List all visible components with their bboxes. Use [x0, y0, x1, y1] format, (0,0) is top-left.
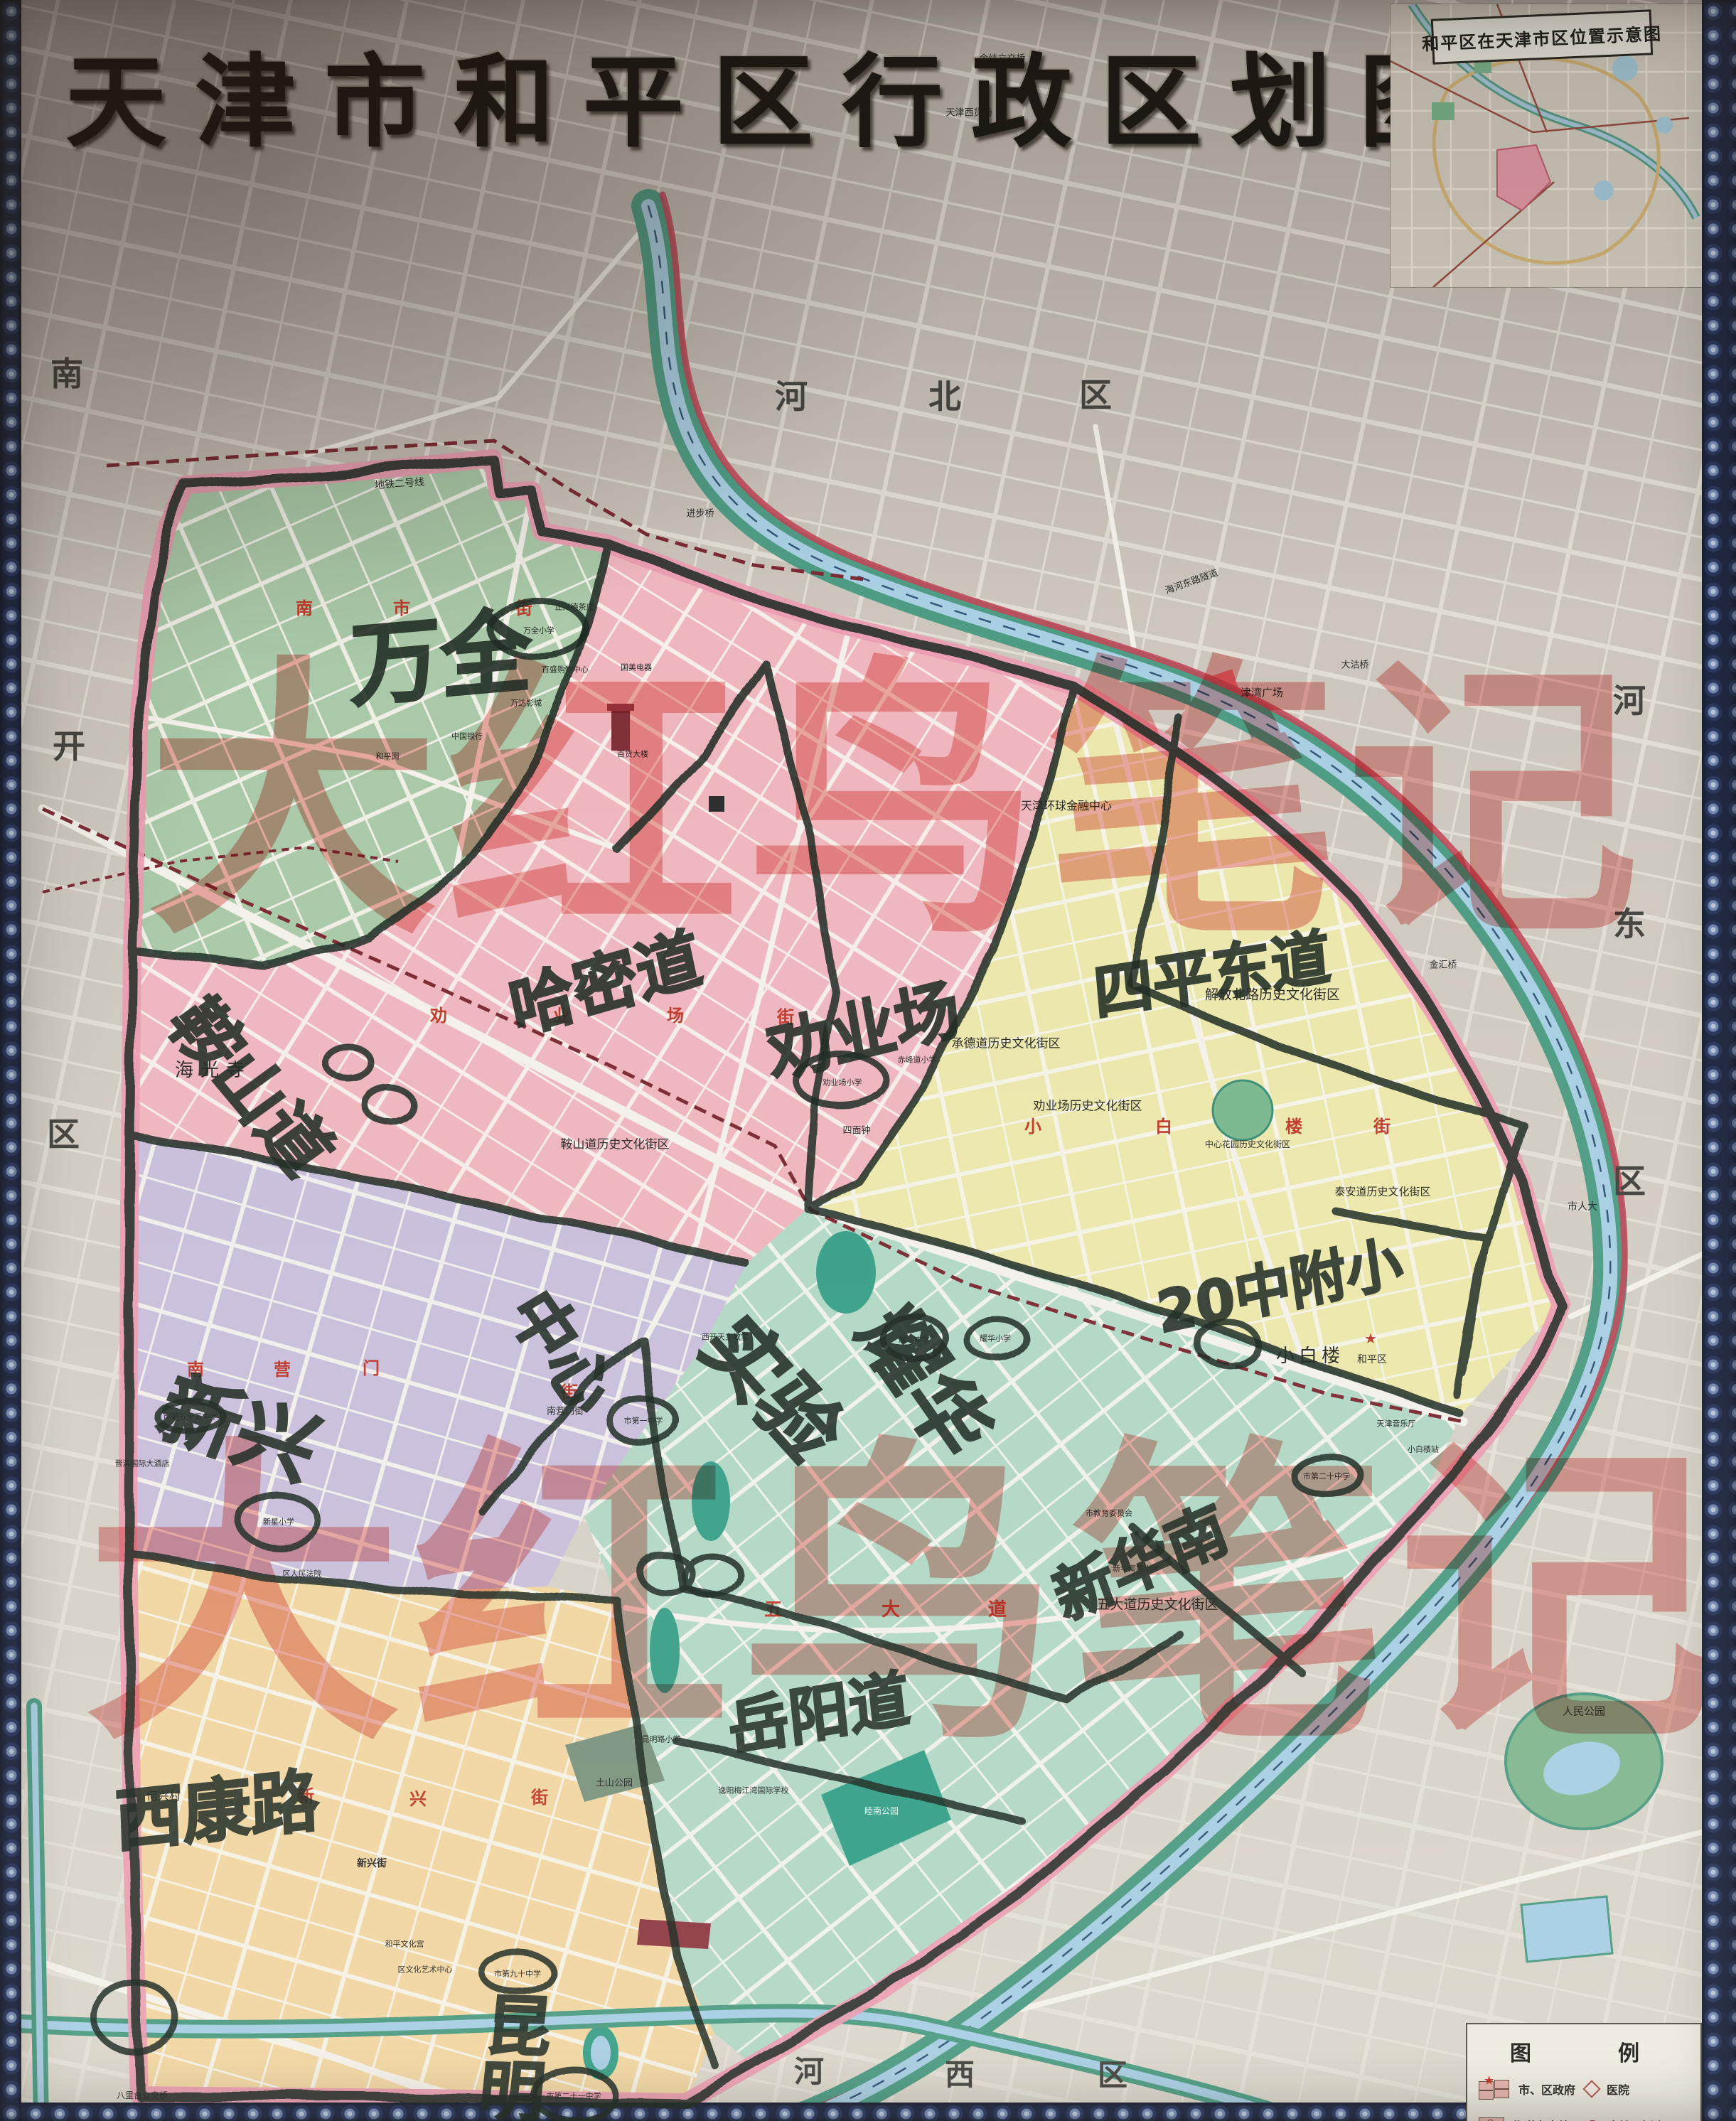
handwritten-note: 劝业场	[763, 976, 965, 1088]
picture-frame-left	[0, 0, 21, 2121]
handwritten-note: 昆明路	[464, 1991, 550, 2121]
picture-frame-right	[1702, 0, 1736, 2121]
handwritten-note: 四平东道	[1091, 927, 1332, 1024]
handwritten-note: 哈密道	[505, 925, 707, 1043]
handwritten-note: 新华南	[1046, 1498, 1235, 1630]
handwritten-note: 实验	[687, 1306, 856, 1473]
handwritten-note: 岳阳道	[725, 1668, 912, 1761]
handwritten-note: 新兴	[147, 1368, 328, 1491]
handwritten-note: 西康路	[114, 1766, 320, 1856]
handwritten-note: 鞍山道	[157, 989, 344, 1186]
handwritten-note: 耀华	[845, 1296, 1004, 1468]
framed-map-photo: 河北区南开区河东区河西区南市街劝业场街小白楼街南营门街五大道新兴街★金纬立交桥天…	[0, 0, 1736, 2121]
handwritten-note: 20中附小	[1154, 1234, 1406, 1342]
handwritten-note-layer: 万全哈密道鞍山道劝业场四平东道中心实验耀华新兴20中附小新华南岳阳道西康路昆明路	[0, 0, 1736, 2121]
handwritten-note: 万全	[349, 606, 532, 714]
handwritten-note: 中心	[496, 1282, 628, 1422]
